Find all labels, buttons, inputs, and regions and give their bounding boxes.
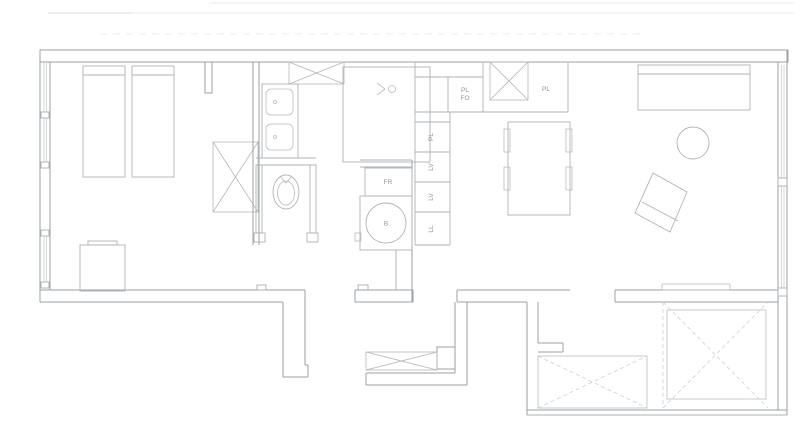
terrace-left-wall	[527, 302, 563, 415]
coffee-table	[677, 127, 709, 159]
terrace-bottom-edge	[527, 410, 787, 415]
sofa	[638, 65, 750, 110]
bottom-left-wall	[40, 290, 308, 377]
window-mullion	[41, 282, 49, 288]
right-wall-windows	[778, 65, 787, 296]
armchair	[635, 173, 687, 232]
bed-1	[83, 66, 125, 177]
window-mullion	[41, 162, 49, 168]
column-cell-label: LV	[428, 163, 435, 171]
water-heater-label: B	[384, 221, 388, 228]
column-cell-label: LL	[428, 225, 435, 233]
top-wall	[40, 50, 788, 62]
floor-plan: FR B PL FO PL PL LV LV LL	[0, 0, 800, 428]
window-mullion	[778, 288, 787, 296]
chair-mark	[566, 129, 572, 152]
bed-2	[132, 66, 174, 177]
dresser	[80, 241, 125, 291]
svg-text:PL: PL	[461, 87, 469, 94]
kitchen-hood-crossed	[490, 62, 528, 100]
kitchen-counters: PL FO PL	[415, 62, 568, 245]
toilet	[254, 158, 318, 242]
armchair-seat-line	[642, 202, 678, 221]
wall-cabinet-label: PL	[542, 86, 550, 93]
utility-closet: FR B	[355, 160, 412, 250]
terrace-top-wall	[615, 284, 778, 302]
roof-outline-lines	[48, 3, 795, 34]
faucet-icon	[274, 136, 277, 139]
wall-stub	[205, 62, 212, 93]
dining-table	[504, 122, 572, 215]
left-wall-windows	[41, 63, 49, 288]
window-mullion	[41, 112, 49, 118]
svg-text:FO: FO	[460, 95, 469, 102]
chair-mark	[566, 167, 572, 190]
door-jamb	[358, 285, 368, 290]
fridge-label: FR	[384, 179, 393, 186]
window-mullion	[778, 178, 787, 186]
bathroom-cabinet-crossed	[289, 62, 344, 84]
kitchen-appliance-column: PL LV LV LL	[415, 112, 450, 245]
column-cell-label: PL	[428, 133, 435, 141]
wardrobe-crossed	[213, 142, 258, 212]
chair-mark	[504, 167, 510, 190]
column-cell-label: LV	[428, 193, 435, 201]
floor-plan-drawing: FR B PL FO PL PL LV LV LL	[0, 0, 800, 428]
door-jamb	[257, 285, 266, 290]
window-mullion	[41, 230, 49, 236]
door-threshold	[662, 284, 730, 290]
sink-2	[266, 124, 293, 150]
oven-unit: PL FO	[460, 87, 469, 102]
shower	[343, 67, 430, 162]
faucet-icon	[274, 101, 277, 104]
column	[437, 347, 455, 369]
vanity	[262, 84, 298, 158]
entry-closet-crossed	[366, 352, 437, 370]
sink-1	[266, 89, 293, 115]
terrace-pergola-crossed	[663, 302, 768, 408]
shower-head-icon	[377, 83, 396, 95]
toilet-bowl	[273, 175, 299, 209]
chair-mark	[504, 129, 510, 152]
exterior-walls	[40, 50, 788, 415]
entry-walls	[366, 290, 570, 385]
terrace-planter-crossed	[538, 356, 647, 408]
